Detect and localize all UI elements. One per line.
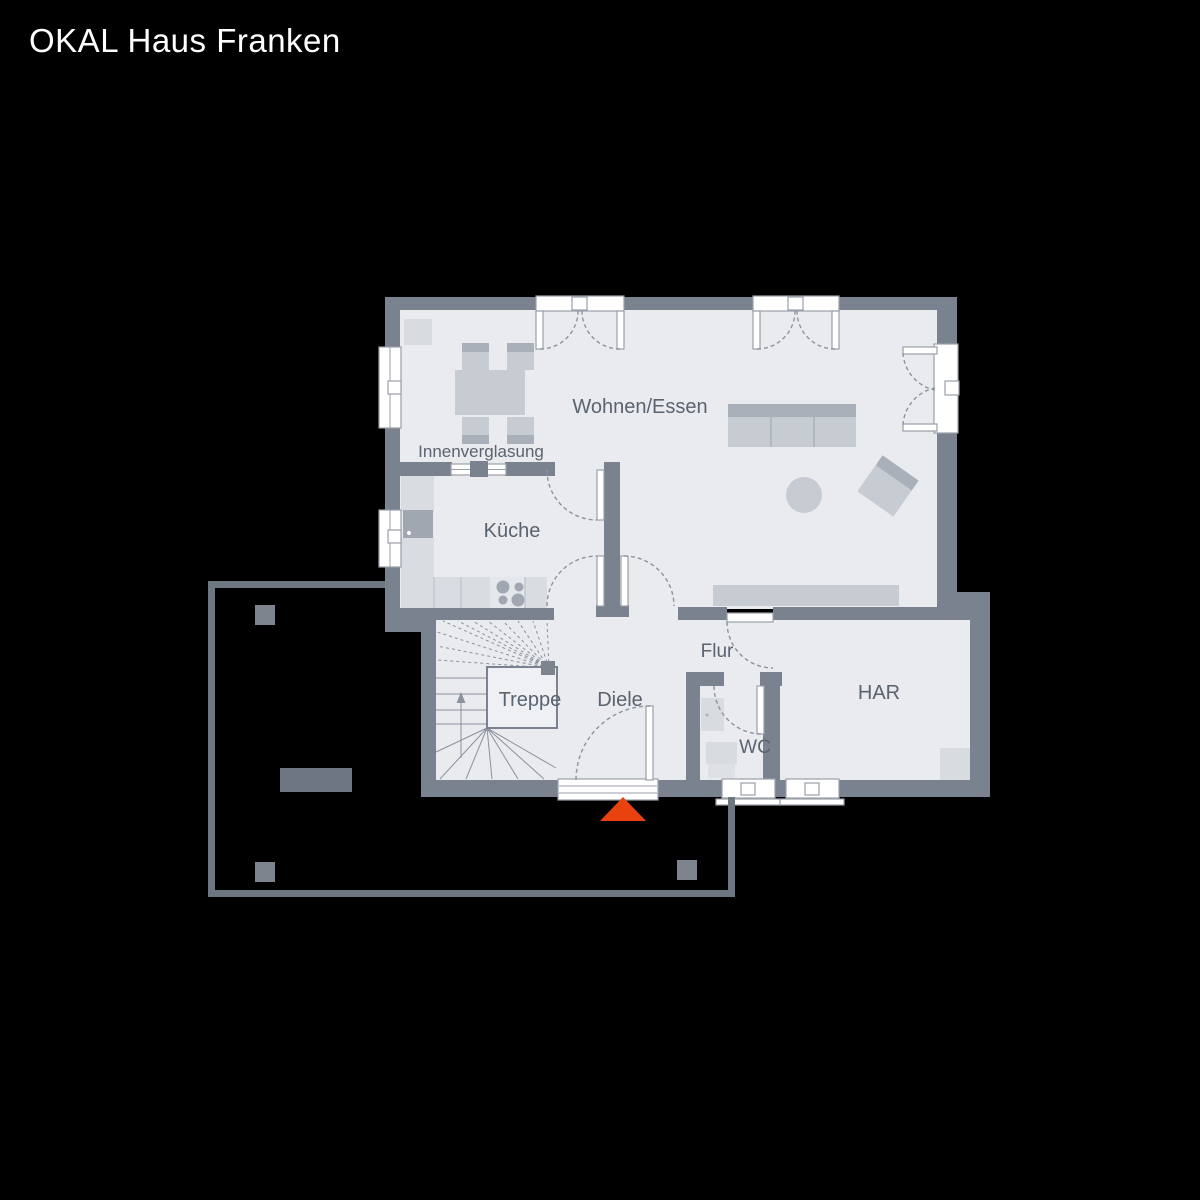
- door-leaf: [832, 311, 839, 349]
- wall-segment: [624, 297, 753, 310]
- door-handle: [788, 297, 803, 310]
- wall-segment: [596, 605, 629, 617]
- room-label-stairs: Treppe: [499, 689, 562, 711]
- wc-wall-segment: [686, 672, 700, 782]
- room-label-living: Wohnen/Essen: [572, 396, 707, 418]
- door-handle: [945, 381, 959, 395]
- terrace-step: [280, 768, 352, 792]
- terrace-post: [255, 605, 275, 625]
- window-handle: [805, 783, 819, 795]
- wall-segment: [937, 432, 957, 592]
- glazing-wall-segment: [505, 462, 555, 476]
- door-leaf: [727, 613, 773, 622]
- kitchen-counter: [401, 538, 434, 578]
- lowboard: [713, 585, 899, 606]
- room-label-corridor: Flur: [701, 641, 734, 662]
- door-leaf: [903, 424, 937, 431]
- glazing-wall-segment: [400, 462, 452, 476]
- sofa-seats: [728, 417, 856, 447]
- burner: [515, 583, 524, 592]
- sideboard: [404, 319, 432, 345]
- room-label-kitchen: Küche: [484, 520, 541, 542]
- glazing-post: [470, 461, 488, 477]
- wall-segment: [385, 297, 536, 310]
- floor-plan: Wohnen/Essen Innenverglasung Küche Trepp…: [0, 0, 1200, 1200]
- door-leaf: [597, 556, 604, 606]
- terrace-post: [677, 860, 697, 880]
- window-handle: [388, 381, 401, 394]
- wall-segment: [658, 780, 722, 797]
- wc-wall-segment: [763, 672, 780, 782]
- dining-table: [455, 370, 525, 415]
- sofa-back: [728, 404, 856, 417]
- door-handle: [572, 297, 587, 310]
- room-label-glazing: Innenverglasung: [418, 442, 544, 461]
- har-equipment: [940, 748, 971, 780]
- chair-back: [462, 343, 489, 352]
- door-leaf: [753, 311, 760, 349]
- burner: [497, 581, 510, 594]
- wall-segment: [421, 620, 436, 782]
- door-leaf: [597, 470, 604, 520]
- wall-segment: [385, 297, 400, 347]
- burner: [512, 594, 525, 607]
- stair-post: [541, 661, 555, 675]
- room-label-hallway: Diele: [597, 689, 643, 711]
- door-leaf: [621, 556, 628, 606]
- door-leaf: [536, 311, 543, 349]
- room-label-har: HAR: [858, 682, 900, 704]
- door-leaf: [757, 686, 764, 734]
- wc-toilet-bowl: [708, 764, 735, 778]
- entrance-threshold: [558, 779, 658, 800]
- floor-passage-kitchen: [552, 604, 598, 622]
- chair-back: [507, 343, 534, 352]
- burner: [499, 596, 508, 605]
- room-label-wc: WC: [739, 737, 771, 758]
- wall-segment: [937, 297, 957, 345]
- wall-segment: [970, 607, 990, 797]
- door-leaf: [903, 347, 937, 354]
- window-handle: [388, 530, 401, 543]
- wall-segment: [421, 780, 558, 797]
- sink-dot: [706, 714, 709, 717]
- terrace-post: [255, 862, 275, 882]
- window-sill: [716, 799, 780, 805]
- coffee-table: [786, 477, 822, 513]
- wall-segment: [604, 462, 620, 608]
- window-handle: [741, 783, 755, 795]
- door-leaf: [617, 311, 624, 349]
- page: { "header": { "title": "OKAL Haus Franke…: [0, 0, 1200, 1200]
- window-sill: [780, 799, 844, 805]
- door-leaf: [646, 706, 653, 780]
- wall-segment: [773, 607, 970, 620]
- wall-segment: [839, 780, 990, 797]
- wall-segment: [775, 780, 786, 797]
- appliance-dot: [407, 531, 411, 535]
- wc-sink: [701, 698, 724, 731]
- wall-segment: [678, 607, 727, 620]
- wc-toilet-tank: [706, 742, 737, 764]
- wall-segment: [385, 428, 400, 510]
